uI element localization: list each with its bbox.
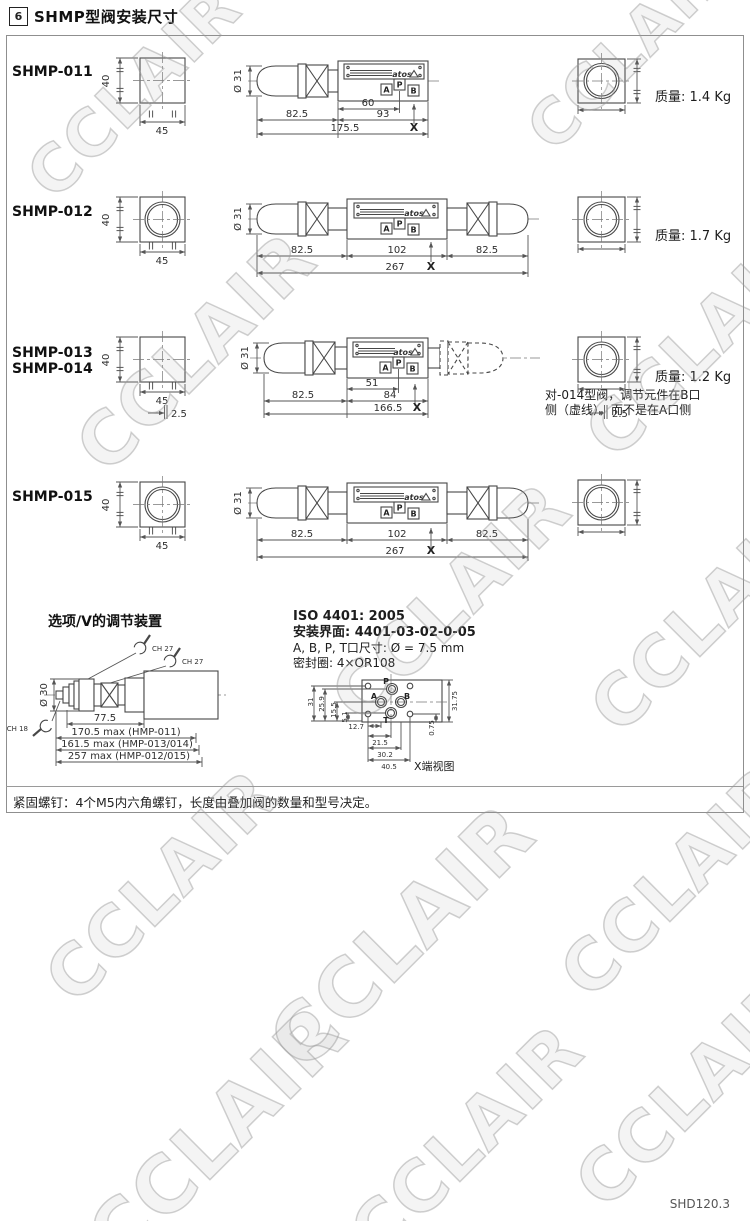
x-axis-label: X	[410, 121, 419, 134]
x-axis-label: X	[413, 401, 422, 414]
length-3: 257 max (HMP-012/015)	[68, 751, 190, 762]
end-view	[572, 474, 641, 536]
dim-height: 40	[101, 75, 112, 88]
dim-60: 60	[362, 98, 375, 109]
wrench-ch18: CH 18	[7, 701, 60, 738]
bottom-dims: 12.7 21.5 30.2 40.5 X端视图	[348, 717, 454, 773]
dim-total: 166.5	[374, 403, 403, 414]
model-label-2: SHMP-014	[12, 361, 93, 377]
side-view: Ø 31 atos A	[232, 199, 540, 277]
model-label: SHMP-011	[12, 64, 93, 80]
solenoid-cap-right	[497, 204, 528, 234]
port-a: A	[383, 85, 390, 94]
dim-51: 51	[366, 378, 379, 389]
solenoid-cap-right	[497, 488, 528, 518]
dim-77-5-label: 77.5	[94, 713, 116, 724]
shmp-012-drawing: SHMP-012 40 45 Ø 31	[0, 185, 750, 305]
dim-right: 82.5	[476, 245, 498, 256]
dim-82-5: 82.5	[286, 109, 308, 120]
dim-total: 175.5	[331, 123, 360, 134]
weight-label: 质量: 1.7 Kg	[655, 229, 731, 244]
dim-mid: 102	[387, 245, 406, 256]
front-view: 40 45	[101, 476, 192, 552]
dim-total: 267	[385, 262, 404, 273]
nameplate: atos	[354, 203, 438, 218]
dim-diameter: Ø 31	[239, 346, 251, 370]
port-p: P	[397, 503, 403, 512]
watermark: CCLAIR	[559, 958, 750, 1221]
brand-logo: atos	[404, 493, 424, 502]
option-adjuster-drawing: Ø 30 CH 18 CH 27 CH 27	[0, 600, 290, 815]
dim-left: 82.5	[291, 529, 313, 540]
seal-symbol-right	[467, 487, 489, 519]
wrench-ch27-label: CH 27	[152, 645, 173, 653]
port-a: A	[382, 363, 389, 372]
front-view: 40 45 2.5	[101, 331, 192, 420]
adjuster-device	[56, 671, 218, 719]
dim-width: 45	[156, 541, 169, 552]
port-b: B	[409, 364, 415, 373]
dim-84: 84	[384, 390, 397, 401]
port-a-label: A	[371, 692, 378, 701]
model-label: SHMP-013	[12, 345, 93, 361]
dim-d30-label: Ø 30	[38, 683, 50, 707]
dim-30-2: 30.2	[377, 751, 393, 759]
dim-31-75: 31.75	[451, 691, 459, 711]
wrench-ch27-label-2: CH 27	[182, 658, 203, 666]
solenoid-cap-left	[264, 343, 305, 373]
dim-93: 93	[377, 109, 390, 120]
shmp-011-drawing: SHMP-011 40 45 Ø 31	[0, 45, 750, 185]
port-p: P	[397, 80, 403, 89]
solenoid-cap	[257, 66, 298, 96]
iso-title: ISO 4401: 2005	[293, 609, 483, 625]
model-label: SHMP-015	[12, 489, 93, 505]
side-view: Ø 31 atos A	[232, 483, 540, 561]
dim-offset: 2.5	[171, 409, 187, 420]
dim-mid: 102	[387, 529, 406, 540]
catalog-page: 6 SHMP型阀安装尺寸 SHMP-011 40 45 Ø 31	[0, 0, 750, 1221]
watermark: CCLAIR	[334, 1008, 600, 1221]
brand-logo: atos	[393, 348, 413, 357]
end-view	[572, 191, 641, 253]
port-b: B	[410, 225, 416, 234]
solenoid-cap-left	[257, 204, 298, 234]
port-p: P	[396, 358, 402, 367]
x-axis-label: X	[427, 260, 436, 273]
dashed-adjuster	[440, 341, 503, 375]
x-axis-label: X	[427, 544, 436, 557]
brand-logo: atos	[404, 209, 424, 218]
model-label: SHMP-012	[12, 204, 93, 220]
length-2: 161.5 max (HMP-013/014)	[61, 739, 193, 750]
section-number: 6	[9, 7, 28, 26]
document-code: SHD120.3	[640, 1197, 730, 1211]
mounting-surface-drawing: P A B T 31 25.9 15.5 5.1 31.75	[290, 668, 480, 780]
weight-label: 质量: 1.4 Kg	[655, 90, 731, 105]
wrench-icon	[29, 719, 52, 738]
front-view: 40 45	[101, 191, 192, 267]
solenoid-cap-left	[257, 488, 298, 518]
dim-end-offset: 2.5	[612, 409, 628, 420]
note-line-1: 对-014型阀，调节元件在B口	[545, 388, 700, 402]
page-title: SHMP型阀安装尺寸	[34, 6, 178, 27]
port-p: P	[397, 219, 403, 228]
dim-40-5: 40.5	[381, 763, 397, 771]
dim-height: 40	[101, 499, 112, 512]
length-1: 170.5 max (HMP-011)	[71, 727, 180, 738]
dim-21-5: 21.5	[372, 739, 388, 747]
port-p-label: P	[383, 677, 389, 686]
port-b: B	[410, 509, 416, 518]
note-separator	[6, 786, 743, 787]
port-a: A	[383, 508, 390, 517]
dim-width: 45	[156, 396, 169, 407]
dim-width: 45	[156, 256, 169, 267]
dim-5-1: 5.1	[341, 711, 349, 722]
dim-left: 82.5	[291, 245, 313, 256]
dim-height: 40	[101, 354, 112, 367]
port-t-label: T	[383, 716, 389, 725]
seal-symbol	[306, 65, 328, 97]
length-dims: 170.5 max (HMP-011) 161.5 max (HMP-013/0…	[56, 712, 202, 767]
weight-label: 质量: 1.2 Kg	[655, 370, 731, 385]
seal-symbol-left	[313, 342, 335, 374]
shmp-015-drawing: SHMP-015 40 45 Ø 31	[0, 465, 750, 580]
watermark: CCLAIR	[71, 988, 365, 1221]
dim-diameter: Ø 31	[232, 491, 244, 515]
side-view: Ø 31 atos A	[232, 61, 442, 138]
mounting-plate	[362, 680, 442, 722]
dim-diameter: Ø 31	[232, 207, 244, 231]
nameplate: atos	[354, 487, 438, 502]
brand-logo: atos	[392, 70, 412, 79]
x-end-view-label: X端视图	[414, 759, 455, 773]
dim-0-75: 0.75	[428, 720, 436, 736]
dim-31: 31	[307, 698, 315, 707]
iso-section: ISO 4401: 2005 安装界面: 4401-03-02-0-05 A, …	[293, 609, 483, 671]
fastening-note: 紧固螺钉：4个M5内六角螺钉，长度由叠加阀的数量和型号决定。	[13, 792, 377, 811]
shmp-013-014-drawing: SHMP-013 SHMP-014 40 45 2.5	[0, 325, 750, 465]
seal-symbol-right	[467, 203, 489, 235]
seal-symbol-left	[306, 487, 328, 519]
dim-82-5: 82.5	[292, 390, 314, 401]
dim-77-5: 77.5	[67, 710, 144, 728]
nameplate: atos	[344, 64, 424, 79]
port-a: A	[383, 224, 390, 233]
iso-surface: 安装界面: 4401-03-02-0-05	[293, 625, 483, 641]
port-b: B	[410, 86, 416, 95]
dim-height: 40	[101, 214, 112, 227]
dim-15-5: 15.5	[330, 702, 338, 718]
nameplate: atos	[353, 342, 423, 357]
front-view: 40 45	[101, 52, 192, 137]
seal-symbol-left	[306, 203, 328, 235]
dim-12-7: 12.7	[348, 723, 364, 731]
watermark: CCLAIR	[251, 786, 553, 1088]
end-view	[572, 53, 641, 114]
dim-right: 82.5	[476, 529, 498, 540]
dim-diameter: Ø 31	[232, 69, 244, 93]
side-view: Ø 31 atos A	[239, 338, 540, 418]
dim-25-9: 25.9	[318, 696, 326, 712]
iso-ports-size: A, B, P, T口尺寸: Ø = 7.5 mm	[293, 641, 483, 656]
port-b-label: B	[404, 692, 410, 701]
dim-total: 267	[385, 546, 404, 557]
wrench-ch18-label: CH 18	[7, 725, 28, 733]
dim-width: 45	[156, 126, 169, 137]
